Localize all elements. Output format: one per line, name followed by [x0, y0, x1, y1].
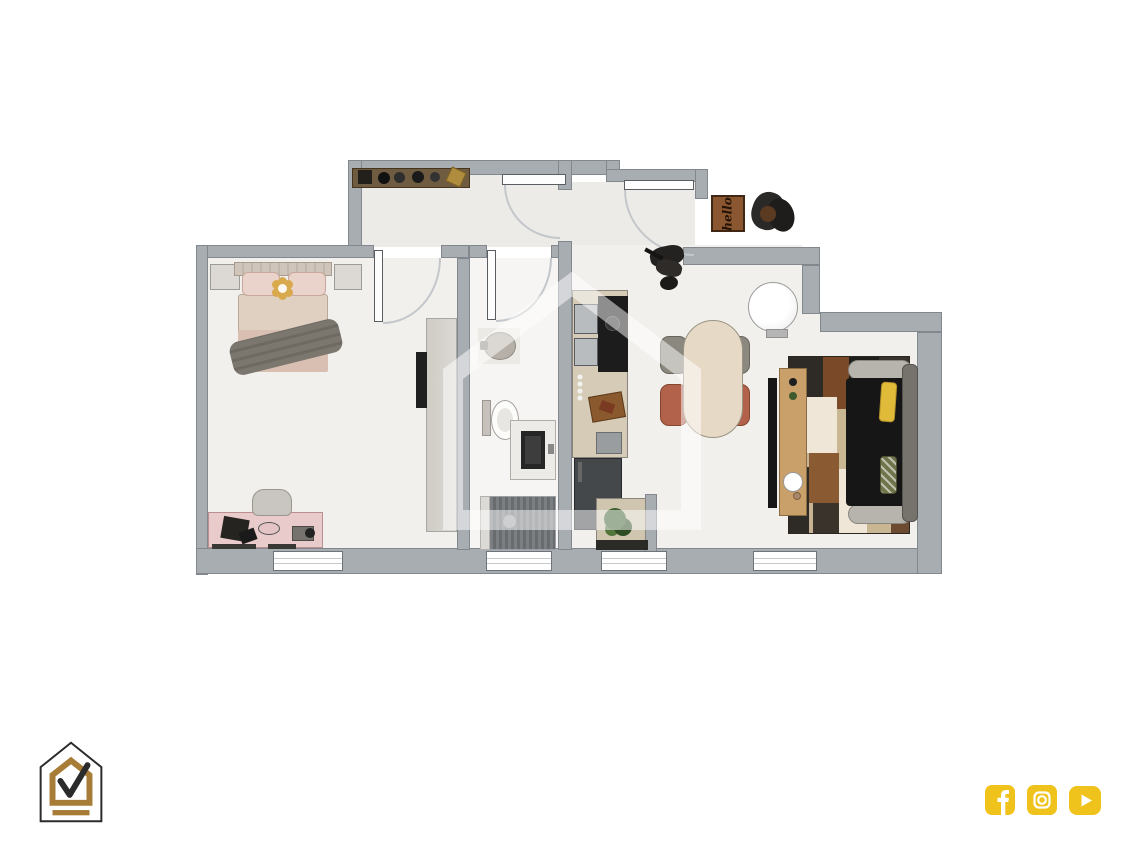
house-check-logo[interactable]	[38, 740, 104, 824]
kitchen-sink	[596, 432, 622, 454]
youtube-icon[interactable]	[1069, 786, 1101, 815]
doormat: hello	[711, 195, 745, 232]
bidet-faucet	[480, 341, 488, 350]
left-wall	[196, 245, 208, 575]
bedroom-bath-wall	[457, 258, 470, 550]
hall-shelf-item	[394, 172, 405, 183]
pot	[605, 316, 620, 331]
under-desk-item	[268, 544, 296, 549]
bedroom-door	[374, 250, 383, 322]
desk-chair	[252, 489, 292, 516]
vanity-tap	[548, 444, 554, 454]
instagram-icon[interactable]	[1027, 785, 1057, 815]
step-wall-vertical	[802, 265, 820, 314]
water-heater	[748, 282, 798, 332]
desk-logo-plate	[258, 522, 280, 535]
dining-table	[683, 320, 743, 438]
camera-lens	[305, 528, 315, 538]
console-knob	[789, 378, 797, 386]
hall-shelf-item	[378, 172, 390, 184]
landing-wall	[683, 247, 820, 265]
console-cup	[793, 492, 801, 500]
green-pillow	[880, 456, 897, 494]
toilet-tank	[482, 400, 491, 436]
window-living	[753, 551, 817, 571]
window-bedroom	[273, 551, 343, 571]
pillow-left	[242, 272, 280, 296]
hallway-door	[502, 174, 566, 185]
shower	[480, 496, 556, 550]
under-desk-item	[212, 544, 256, 549]
hallway-floor-connector	[558, 190, 572, 247]
entry-door	[624, 180, 694, 190]
floor-plan-image: hello	[0, 0, 1133, 850]
bedroom-tv	[416, 352, 427, 408]
shower-ledge	[480, 496, 490, 550]
hall-shelf-item	[412, 171, 424, 183]
window-kitchen	[601, 551, 667, 571]
plant	[604, 508, 626, 530]
social-links	[985, 785, 1101, 815]
right-wall	[917, 332, 942, 574]
bath-wall-left-seg	[469, 245, 487, 258]
water-heater-base	[766, 329, 788, 338]
bath-kitchen-wall	[558, 241, 572, 550]
shower-drain	[502, 514, 517, 529]
sofa-back	[902, 364, 918, 522]
bedroom-top-wall-2	[441, 245, 469, 258]
bidet	[484, 332, 516, 360]
window-bathroom	[486, 551, 552, 571]
kitchen-cabinet	[574, 304, 598, 334]
hob-knobs	[576, 374, 584, 401]
coat-rack-basket	[760, 206, 776, 222]
yellow-pillow	[879, 381, 898, 422]
sofa-seat	[846, 378, 908, 506]
logo-base-bar	[53, 810, 90, 815]
console-tray	[783, 472, 803, 492]
range	[598, 296, 628, 372]
kitchen-cabinet	[574, 338, 598, 366]
living-tv	[768, 378, 777, 508]
vanity-sink-basin	[525, 436, 541, 464]
bedroom-top-wall	[196, 245, 374, 258]
pillow-right	[288, 272, 326, 296]
flower-decor	[278, 284, 287, 293]
hall-shelf-box	[358, 170, 372, 184]
hall-shelf-item	[430, 172, 440, 182]
facebook-icon[interactable]	[985, 785, 1015, 815]
entry-door-stub	[695, 169, 708, 199]
bathroom-door	[487, 250, 496, 320]
step-wall-horizontal	[820, 312, 942, 332]
console-plant	[789, 392, 797, 400]
nightstand-right	[334, 264, 362, 290]
counter-dark-rim	[596, 540, 648, 550]
doormat-text: hello	[721, 197, 735, 230]
sofa	[842, 358, 920, 530]
wardrobe	[426, 318, 457, 532]
fridge-handle	[578, 462, 582, 482]
